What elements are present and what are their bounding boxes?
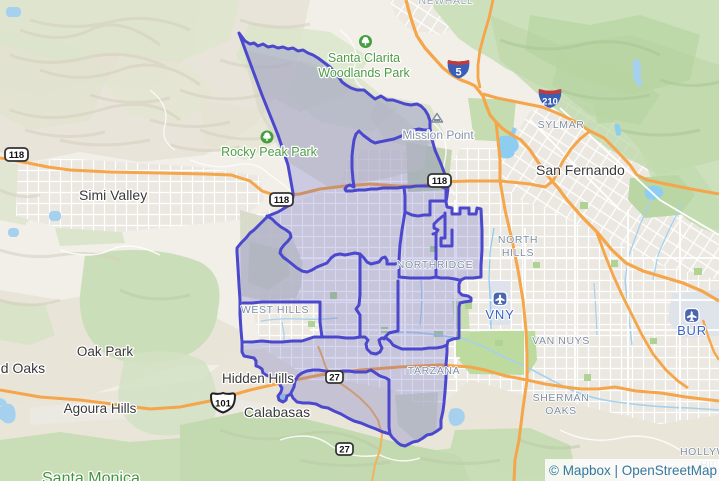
svg-text:210: 210 (542, 97, 558, 108)
svg-text:WEST HILLS: WEST HILLS (241, 304, 309, 316)
svg-text:101: 101 (215, 399, 232, 410)
svg-text:27: 27 (329, 373, 340, 384)
svg-text:Mission Point: Mission Point (402, 128, 474, 142)
svg-text:SYLMAR: SYLMAR (538, 119, 585, 131)
svg-text:Woodlands Park: Woodlands Park (318, 66, 410, 80)
svg-text:San Fernando: San Fernando (536, 162, 625, 178)
svg-text:HOLLYWOOD: HOLLYWOOD (680, 446, 719, 458)
svg-text:Oak Park: Oak Park (77, 344, 134, 359)
svg-text:TARZANA: TARZANA (408, 365, 460, 377)
svg-text:Simi Valley: Simi Valley (79, 187, 147, 203)
svg-text:HILLS: HILLS (502, 247, 534, 259)
svg-text:OAKS: OAKS (545, 405, 577, 417)
svg-text:nd Oaks: nd Oaks (0, 360, 45, 376)
svg-text:NORTH: NORTH (498, 234, 538, 246)
svg-text:Calabasas: Calabasas (244, 404, 310, 420)
svg-text:VAN NUYS: VAN NUYS (532, 335, 590, 347)
svg-text:NORTHRIDGE: NORTHRIDGE (397, 259, 473, 271)
svg-text:Agoura Hills: Agoura Hills (64, 401, 137, 416)
svg-text:118: 118 (432, 176, 447, 187)
svg-text:27: 27 (339, 445, 350, 456)
svg-text:NEWHALL: NEWHALL (419, 0, 474, 7)
svg-text:Hidden Hills: Hidden Hills (222, 371, 294, 386)
svg-text:Santa Monica: Santa Monica (42, 470, 140, 481)
svg-text:BUR: BUR (677, 323, 707, 338)
svg-text:© Mapbox | OpenStreetMap: © Mapbox | OpenStreetMap (549, 462, 717, 478)
svg-text:Rocky Peak Park: Rocky Peak Park (221, 145, 318, 159)
svg-text:118: 118 (274, 195, 289, 206)
svg-text:118: 118 (9, 150, 24, 161)
svg-text:5: 5 (455, 67, 461, 79)
svg-text:SHERMAN: SHERMAN (533, 392, 590, 404)
svg-text:VNY: VNY (485, 307, 514, 322)
svg-text:Santa Clarita: Santa Clarita (328, 51, 400, 65)
